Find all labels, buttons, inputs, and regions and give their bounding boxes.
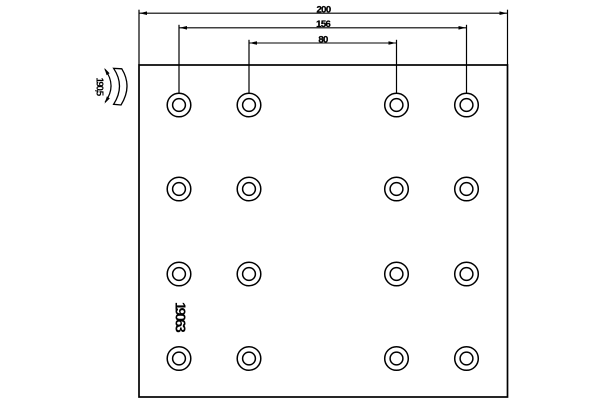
- svg-text:156: 156: [316, 19, 330, 30]
- svg-text:200: 200: [316, 5, 330, 16]
- svg-text:80: 80: [318, 34, 328, 45]
